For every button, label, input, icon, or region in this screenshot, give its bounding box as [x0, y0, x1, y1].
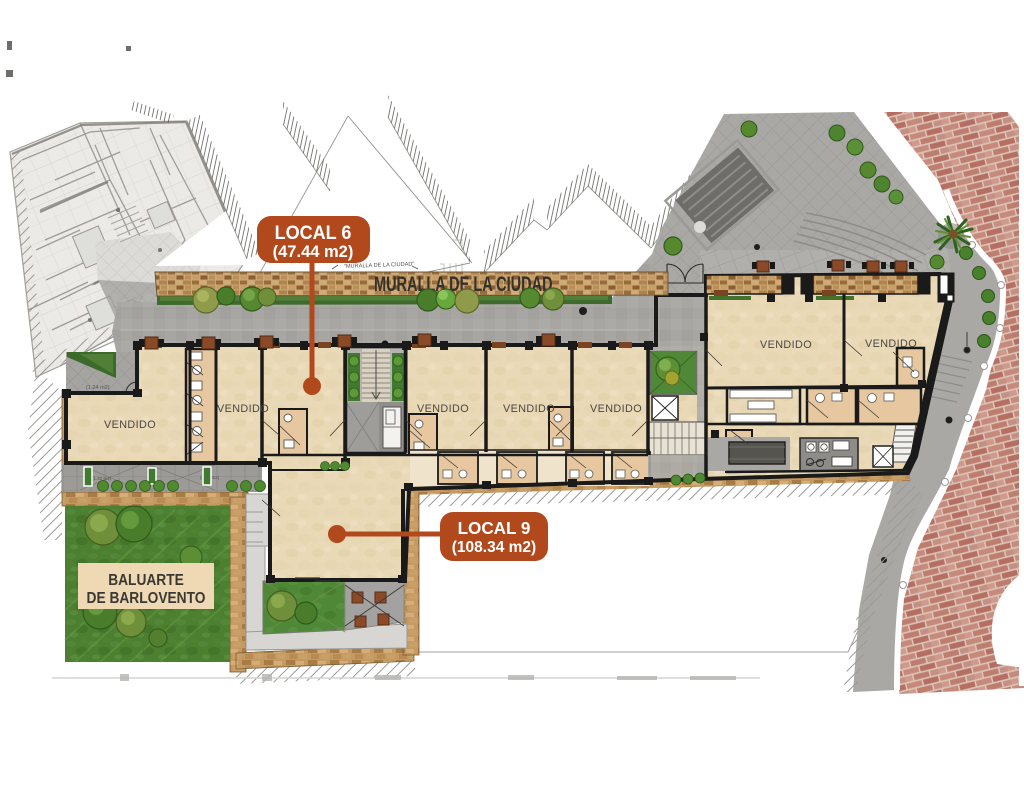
svg-text:(108.34 m2): (108.34 m2): [452, 539, 536, 556]
svg-text:VENDIDO: VENDIDO: [760, 339, 812, 351]
svg-text:LOCAL 6: LOCAL 6: [275, 222, 352, 244]
svg-text:VENDIDO: VENDIDO: [217, 403, 269, 415]
svg-text:(1.24 m2): (1.24 m2): [86, 385, 110, 391]
svg-text:(47.44 m2): (47.44 m2): [273, 243, 354, 261]
svg-text:DE BARLOVENTO: DE BARLOVENTO: [87, 589, 206, 607]
svg-text:VENDIDO: VENDIDO: [104, 419, 156, 431]
svg-text:VENDIDO: VENDIDO: [590, 403, 642, 415]
svg-text:VENDIDO: VENDIDO: [865, 338, 917, 350]
svg-text:VENDIDO: VENDIDO: [417, 403, 469, 415]
svg-text:VENDIDO: VENDIDO: [503, 403, 555, 415]
svg-text:LOCAL 9: LOCAL 9: [458, 518, 531, 539]
svg-text:BALUARTE: BALUARTE: [108, 571, 184, 589]
